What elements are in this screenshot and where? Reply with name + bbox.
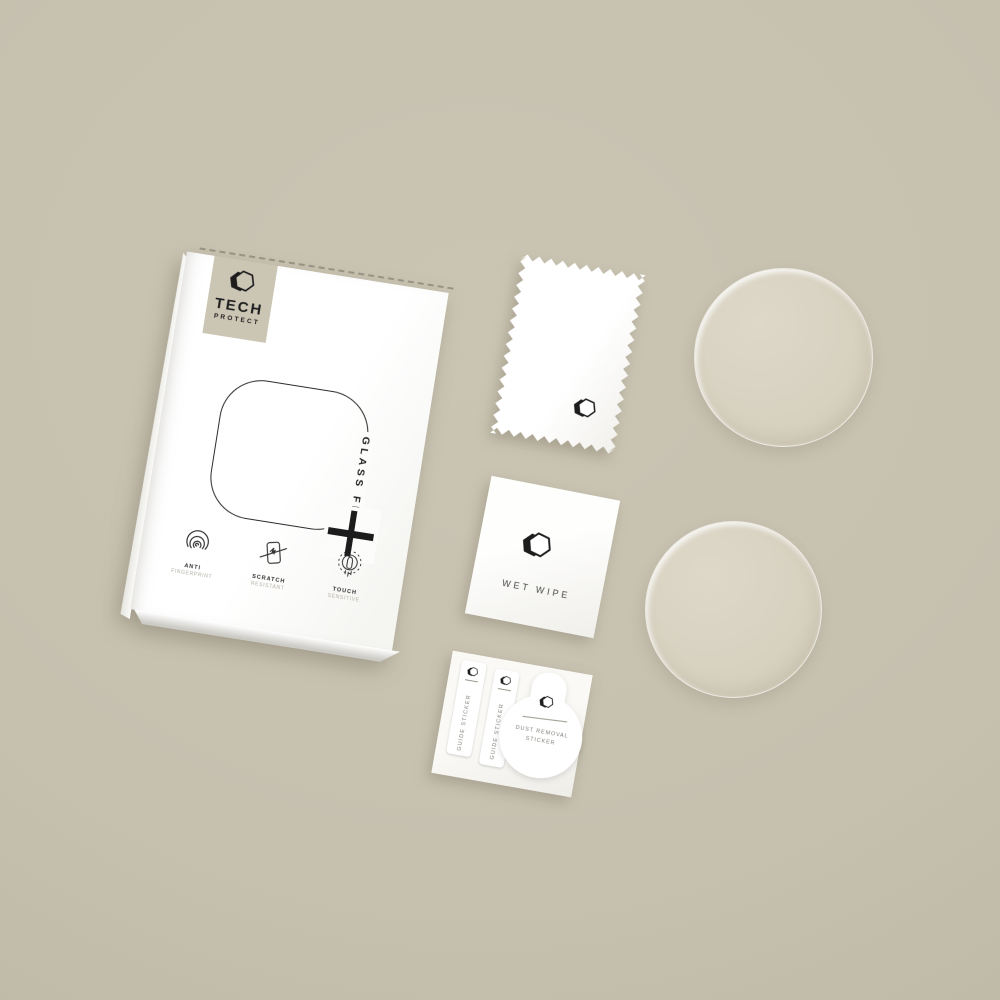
guide-sticker-1: GUIDE STICKER <box>446 659 487 757</box>
product-photo-background: TECH PROTECT GLASS FIT <box>0 0 1000 1000</box>
touch-sensitive-icon <box>330 546 368 584</box>
feature-touch-sensitive: TOUCH SENSITIVE <box>311 544 384 607</box>
glass-protector-disc-2 <box>645 521 822 698</box>
glass-protector-disc-1 <box>694 268 873 447</box>
guide-sticker-label: GUIDE STICKER <box>454 687 474 757</box>
divider-line <box>465 679 478 682</box>
brand-hexagon-icon <box>226 264 260 298</box>
wet-wipe-label: WET WIPE <box>471 572 602 607</box>
brand-hexagon-icon <box>570 393 601 424</box>
brand-patch: TECH PROTECT <box>202 256 277 343</box>
brand-hexagon-icon <box>517 525 558 566</box>
sticker-sheet: GUIDE STICKER GUIDE STICKER DUST REMOVAL… <box>431 651 592 798</box>
retail-box: TECH PROTECT GLASS FIT <box>130 252 448 651</box>
brand-hexagon-icon <box>537 692 557 712</box>
feature-scratch-resistant: SCRATCH RESISTANT <box>235 532 308 595</box>
microfiber-cloth-wrap <box>490 253 646 454</box>
brand-hexagon-icon <box>465 664 480 679</box>
microfiber-cloth <box>490 253 646 454</box>
wet-wipe-packet: WET WIPE <box>465 476 620 638</box>
feature-anti-fingerprint: ANTI FINGERPRINT <box>158 520 231 583</box>
scratch-resistant-icon <box>254 534 292 572</box>
fingerprint-icon <box>178 522 216 560</box>
dust-removal-sticker: DUST REMOVAL STICKER <box>490 664 597 786</box>
box-front-face: TECH PROTECT GLASS FIT <box>130 252 448 651</box>
